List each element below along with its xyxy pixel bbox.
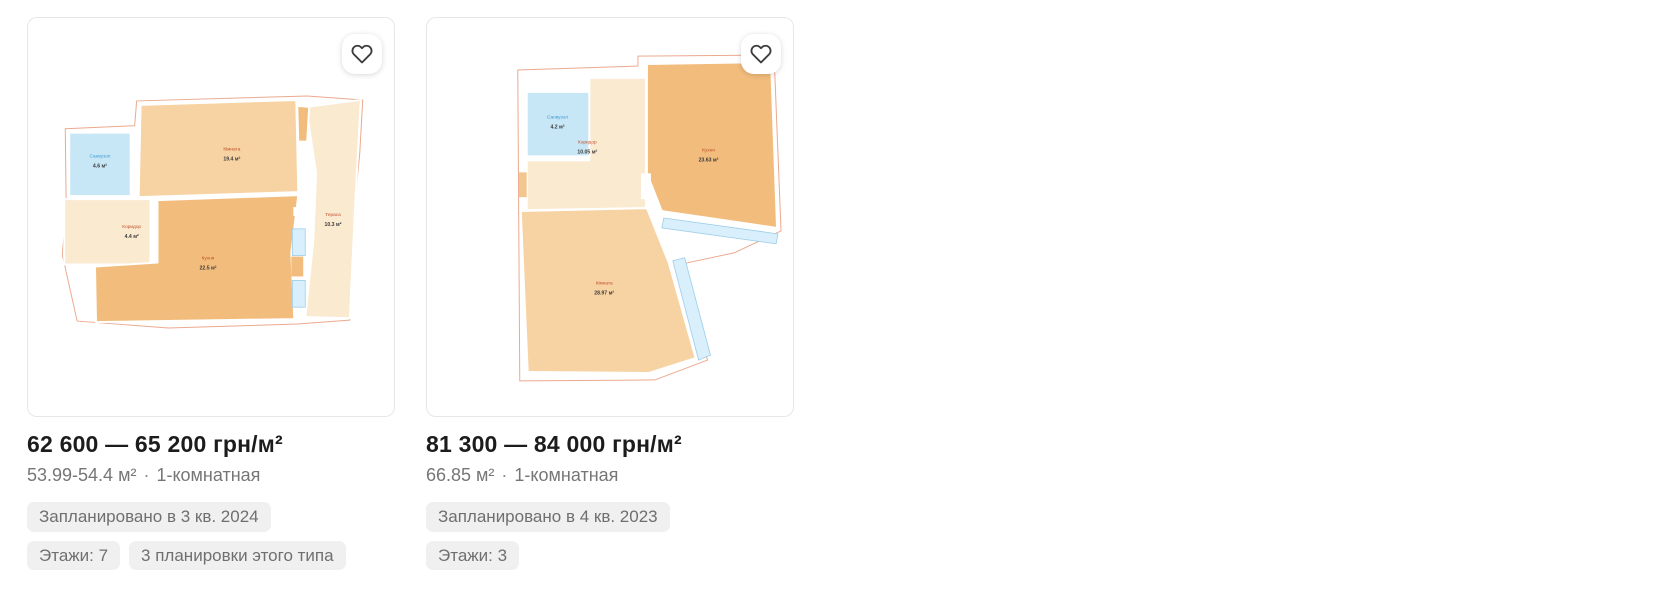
badge-row: Запланировано в 4 кв. 2023 <box>426 502 794 532</box>
wall-segment <box>519 172 527 197</box>
badge-row: Запланировано в 3 кв. 2024 <box>27 502 395 532</box>
floor-plan-image: Санвузол 4.2 м² Коридор 10.05 м² Кухня 2… <box>484 54 784 384</box>
room-name-label: Коридор <box>122 224 141 230</box>
area-range: 53.99-54.4 м² <box>27 465 136 485</box>
room-area-label: 10.05 м² <box>577 149 597 155</box>
room-name-label: Санвузол <box>89 153 110 159</box>
price-range: 62 600 — 65 200 грн/м² <box>27 431 395 458</box>
heart-icon <box>750 43 772 65</box>
room-area-label: 4.6 м² <box>93 163 107 169</box>
floor-plan-image: Санвузол 4.6 м² Кімната 19.4 м² Коридор … <box>59 94 367 329</box>
room-area-label: 22.5 м² <box>200 266 217 272</box>
door-opening <box>293 207 309 216</box>
listing-subtitle: 66.85 м²·1-комнатная <box>426 465 794 486</box>
room-kitchen <box>647 62 777 228</box>
favorite-button[interactable] <box>741 34 781 74</box>
room-type: 1-комнатная <box>514 465 618 485</box>
floor-plan-card[interactable]: Санвузол 4.2 м² Коридор 10.05 м² Кухня 2… <box>426 17 794 417</box>
room-name-label: Санвузол <box>547 115 568 121</box>
dot-separator: · <box>143 465 149 485</box>
badge-row: Этажи: 3 <box>426 541 794 571</box>
window-glazing <box>292 229 305 256</box>
badge-completion: Запланировано в 4 кв. 2023 <box>426 502 670 532</box>
badge-floors: Этажи: 7 <box>27 541 120 571</box>
room-area-label: 10.3 м² <box>325 222 342 228</box>
room-area-label: 4.4 м² <box>125 234 139 240</box>
room-type: 1-комнатная <box>156 465 260 485</box>
room-area-label: 19.4 м² <box>223 156 240 162</box>
room-name-label: Тераса <box>325 212 341 218</box>
listing-card: Санвузол 4.2 м² Коридор 10.05 м² Кухня 2… <box>426 17 794 570</box>
room-area-label: 4.2 м² <box>550 125 564 131</box>
listing-card: Санвузол 4.6 м² Кімната 19.4 м² Коридор … <box>27 17 395 570</box>
room-name-label: Коридор <box>578 140 597 146</box>
room-name-label: Кухня <box>202 256 215 262</box>
favorite-button[interactable] <box>342 34 382 74</box>
wall-segment <box>291 257 303 277</box>
heart-icon <box>351 43 373 65</box>
room-area-label: 23.63 м² <box>699 157 719 163</box>
area-range: 66.85 м² <box>426 465 494 485</box>
badge-layout-count: 3 планировки этого типа <box>129 541 346 571</box>
room-name-label: Кухня <box>702 147 715 153</box>
price-range: 81 300 — 84 000 грн/м² <box>426 431 794 458</box>
window-glazing <box>292 280 305 307</box>
room-living <box>139 100 299 197</box>
floor-plan-card[interactable]: Санвузол 4.6 м² Кімната 19.4 м² Коридор … <box>27 17 395 417</box>
wall-segment <box>297 106 309 142</box>
dot-separator: · <box>501 465 507 485</box>
badge-row: Этажи: 7 3 планировки этого типа <box>27 541 395 571</box>
listing-subtitle: 53.99-54.4 м²·1-комнатная <box>27 465 395 486</box>
badge-completion: Запланировано в 3 кв. 2024 <box>27 502 271 532</box>
room-area-label: 28.97 м² <box>594 290 614 296</box>
room-name-label: Кімната <box>223 147 240 153</box>
listing-grid: Санвузол 4.6 м² Кімната 19.4 м² Коридор … <box>0 0 1680 570</box>
badge-floors: Этажи: 3 <box>426 541 519 571</box>
room-corridor <box>64 199 150 264</box>
door-opening <box>641 173 651 199</box>
room-name-label: Кімната <box>596 281 613 287</box>
